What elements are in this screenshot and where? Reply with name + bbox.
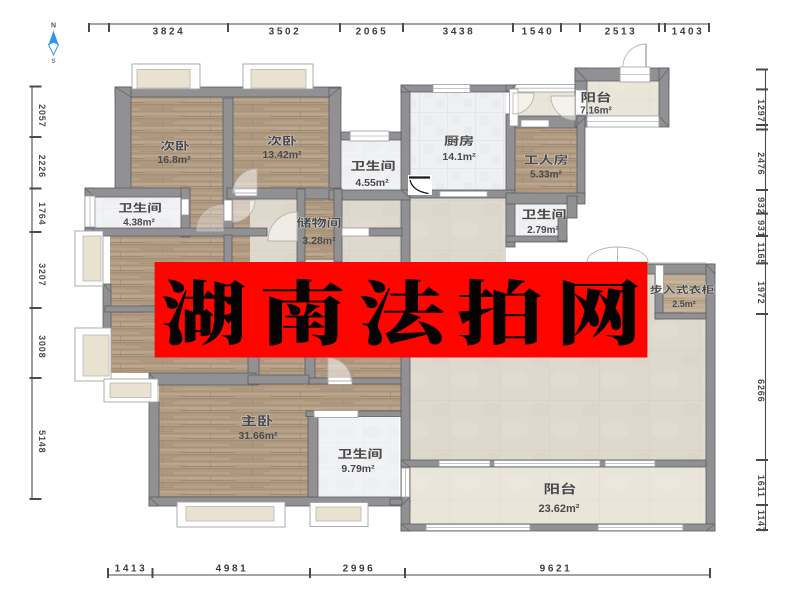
svg-text:2.5m²: 2.5m² (672, 299, 696, 309)
svg-text:3.28m²: 3.28m² (302, 235, 336, 247)
svg-text:932: 932 (756, 197, 766, 214)
svg-text:5.33m²: 5.33m² (530, 170, 562, 181)
svg-text:7.16m²: 7.16m² (580, 106, 612, 117)
svg-text:931: 931 (756, 220, 766, 237)
svg-text:2.79m²: 2.79m² (527, 225, 559, 236)
svg-text:3207: 3207 (37, 263, 47, 286)
svg-text:2057: 2057 (37, 104, 47, 127)
svg-text:13.42m²: 13.42m² (262, 149, 302, 161)
svg-text:16.8m²: 16.8m² (157, 154, 191, 166)
svg-text:1147: 1147 (756, 510, 766, 533)
svg-text:1297: 1297 (756, 99, 766, 122)
svg-text:3824: 3824 (153, 27, 186, 38)
svg-text:23.62m²: 23.62m² (539, 503, 580, 515)
svg-text:1403: 1403 (672, 27, 705, 38)
svg-text:1611: 1611 (756, 475, 766, 498)
svg-text:4.38m²: 4.38m² (123, 218, 155, 229)
svg-text:N: N (51, 23, 56, 30)
svg-text:2065: 2065 (356, 27, 389, 38)
svg-text:5148: 5148 (37, 430, 47, 453)
svg-text:4981: 4981 (216, 564, 249, 575)
svg-text:3502: 3502 (269, 27, 302, 38)
svg-text:3438: 3438 (443, 27, 476, 38)
svg-text:1540: 1540 (522, 27, 555, 38)
svg-text:1972: 1972 (756, 281, 766, 304)
svg-text:14.1m²: 14.1m² (442, 151, 476, 163)
svg-text:S: S (51, 59, 55, 65)
svg-text:2226: 2226 (37, 155, 47, 178)
svg-text:9.79m²: 9.79m² (341, 463, 375, 475)
svg-text:1413: 1413 (115, 564, 148, 575)
svg-text:1165: 1165 (756, 242, 766, 265)
svg-text:2996: 2996 (343, 564, 376, 575)
svg-text:1764: 1764 (37, 202, 47, 225)
svg-text:4.55m²: 4.55m² (355, 177, 389, 189)
svg-text:3008: 3008 (37, 335, 47, 358)
svg-text:31.66m²: 31.66m² (238, 430, 278, 442)
svg-text:2476: 2476 (756, 152, 766, 175)
svg-text:9621: 9621 (540, 564, 573, 575)
svg-text:6266: 6266 (756, 379, 766, 402)
svg-text:2513: 2513 (605, 27, 638, 38)
